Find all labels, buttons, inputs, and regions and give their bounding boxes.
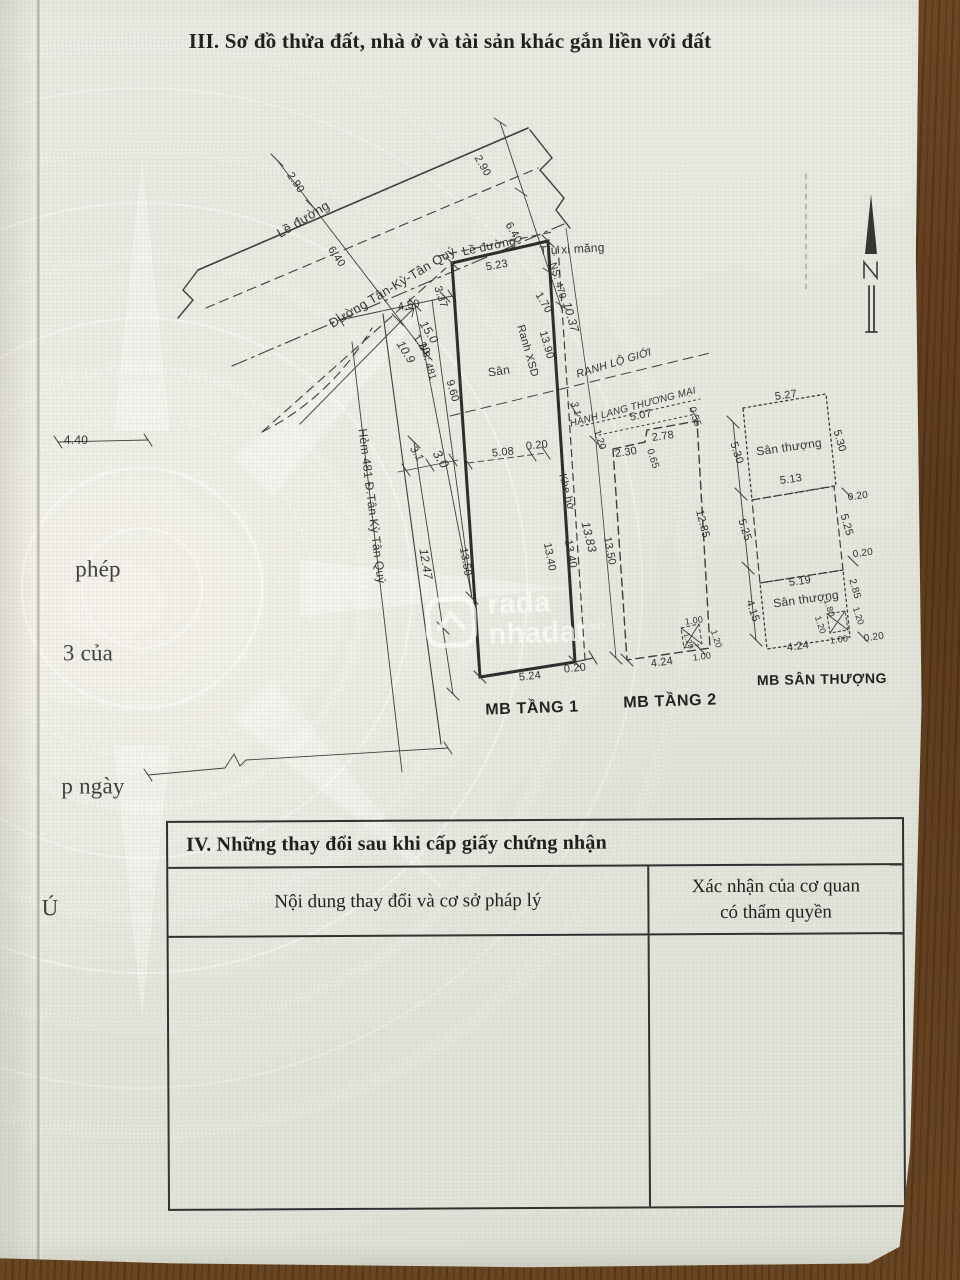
area-label: Đường Tân-Kỳ-Tân Quý <box>327 244 458 330</box>
area-label: Lề đường <box>461 234 517 257</box>
dimension-label: 5.30 <box>727 441 744 466</box>
dimension-label: 1.20 <box>851 606 865 626</box>
watermark-suffix: .vn <box>586 617 605 633</box>
area-label: Sân <box>487 364 510 379</box>
watermark-text: rada nhadat.vn <box>487 587 606 650</box>
section-iv-table: IV. Những thay đổi sau khi cấp giấy chứn… <box>166 817 906 1211</box>
street-dimension-chains <box>271 118 568 360</box>
dimension-label: 4.24 <box>786 640 810 654</box>
section-iii-title: III. Sơ đồ thửa đất, nhà ở và tài sản kh… <box>150 29 750 54</box>
dimension-label: 5.19 <box>788 575 812 589</box>
dimension-label: RANH LỘ GIỚI <box>575 347 653 380</box>
dimension-label: 1.20 <box>410 333 432 358</box>
dimension-label: 1.20 <box>682 632 695 650</box>
watermark-line2: nhadat.vn <box>488 616 606 650</box>
area-label: Sân thượng <box>756 436 823 457</box>
column-header-content: Nội dung thay đổi và cơ sở pháp lý <box>168 866 649 936</box>
dimension-label: 5.27 <box>774 389 798 403</box>
dimension-label: 1.20 <box>709 629 723 649</box>
dimension-label: NS: 481 <box>417 343 437 382</box>
section-iv-title: IV. Những thay đổi sau khi cấp giấy chứn… <box>168 819 902 869</box>
dimension-label: 13.50 <box>457 547 473 577</box>
dimension-label: 12.85 <box>693 509 711 539</box>
north-arrow-icon <box>864 194 877 332</box>
area-label: Lề đường <box>275 198 332 239</box>
floor2-outline <box>613 421 710 666</box>
dimension-label: 0.20 <box>525 439 548 452</box>
dimension-label: 10.9 <box>395 339 418 366</box>
dimension-label: NS: 479 <box>547 262 567 301</box>
boundary-dotted-lines <box>570 399 700 435</box>
rooftop-outline <box>727 394 868 649</box>
dimension-label: 5.23 <box>485 259 509 274</box>
dimension-label: 2.78 <box>651 430 675 444</box>
dimension-label: 3.1 <box>407 444 425 463</box>
area-label: Khe hở <box>556 473 576 512</box>
dimension-label: 1.20 <box>813 615 827 635</box>
edge-text-fragment: phép <box>75 558 121 581</box>
plan-title: MB SÂN THƯỢNG <box>757 671 887 687</box>
column-header-confirm: Xác nhận của cơ quan có thẩm quyền <box>649 865 902 933</box>
photo-of-land-certificate: { "document": { "section_iii": { "title"… <box>0 0 960 1280</box>
plan-title: MB TẦNG 1 <box>485 699 579 718</box>
dimension-label: 5.08 <box>491 446 514 459</box>
dimension-label: 5.25 <box>838 513 855 537</box>
plan-title: MB TẦNG 2 <box>623 692 717 711</box>
section-iv-empty-row <box>169 934 904 1209</box>
dimension-label: 1.20 <box>591 429 607 451</box>
dimension-label: 4.50 <box>397 299 421 314</box>
dimension-label: 6.40 <box>325 245 347 270</box>
edge-text-fragment: 3 của <box>63 642 113 665</box>
dimension-label: 6.40 <box>503 221 524 246</box>
dimension-label: 1.00 <box>684 615 703 626</box>
dimension-label: 4.15 <box>743 599 760 624</box>
street-lines <box>178 128 570 432</box>
change-content-cell <box>169 935 651 1209</box>
dimension-label: 5.24 <box>518 670 541 683</box>
dimension-label: 4.40 <box>64 434 88 446</box>
document-page: III. Sơ đồ thửa đất, nhà ở và tài sản kh… <box>0 0 960 1280</box>
watermark-line1: rada <box>487 587 605 621</box>
dimension-label: 12.47 <box>417 548 434 581</box>
dimension-label: 1.70 <box>533 291 554 316</box>
edge-text-fragment: p ngày <box>61 775 124 798</box>
area-label: Sân thượng <box>773 588 840 609</box>
dimension-label: 13.40 <box>562 539 578 569</box>
watermark-logo-icon <box>423 594 479 650</box>
dimension-label: 10.37 <box>561 300 581 333</box>
dimension-label: 13.50 <box>601 536 617 566</box>
edge-text-fragment: Ú <box>42 897 59 920</box>
section-iv-header-row: Nội dung thay đổi và cơ sở pháp lý Xác n… <box>168 865 902 938</box>
dimension-label: 4.24 <box>650 656 674 670</box>
dimension-label: 5.25 <box>735 518 752 543</box>
dimension-label: 2.90 <box>284 171 306 196</box>
dimension-label: 0.65 <box>644 448 660 470</box>
page-fold-shadow <box>0 0 36 1280</box>
dimension-label: 1.80 <box>822 598 836 618</box>
area-label: Trụ xi măng <box>539 241 605 256</box>
alley-lines <box>54 290 478 781</box>
dimension-label: 5.30 <box>831 429 848 453</box>
dimension-label: 0.20 <box>563 662 586 675</box>
floor1-outline <box>440 228 710 683</box>
dimension-label: 3.0 <box>431 448 452 471</box>
authority-confirm-cell <box>650 934 904 1206</box>
dimension-label: 13.90 <box>537 330 555 360</box>
watermark-radanhadat: rada nhadat.vn <box>423 587 606 652</box>
dimension-label: 0.20 <box>852 548 873 561</box>
dimension-label: 9.60 <box>444 379 461 403</box>
dimension-label: 5.13 <box>779 473 803 487</box>
dimension-label: 3.37 <box>431 285 448 310</box>
area-label: Hẻm 481 Đ.Tân Kỳ Tân Quý <box>357 428 388 584</box>
dimension-label: 13.83 <box>579 520 598 553</box>
dimension-label: 1.00 <box>829 634 848 645</box>
dimension-label: 3.1 <box>568 401 582 418</box>
dimension-label: 5.07 <box>629 408 653 423</box>
dimension-label: 0.55 <box>686 406 702 428</box>
dimension-label: 2.85 <box>846 578 861 600</box>
dimension-label: 15.0 <box>418 319 441 346</box>
dimension-label: 0.20 <box>863 632 884 645</box>
dimension-label: 1.00 <box>692 651 711 662</box>
dimension-label: HÀNH LANG THƯƠNG MẠI <box>569 386 697 429</box>
dimension-label: 2.30 <box>614 446 638 460</box>
dimension-label: 0.20 <box>847 491 868 504</box>
dimension-label: 2.90 <box>472 154 493 179</box>
fold-crease <box>36 0 42 1280</box>
dimension-label: Ranh XSD <box>514 324 539 379</box>
dimension-label: 13.40 <box>541 542 557 572</box>
